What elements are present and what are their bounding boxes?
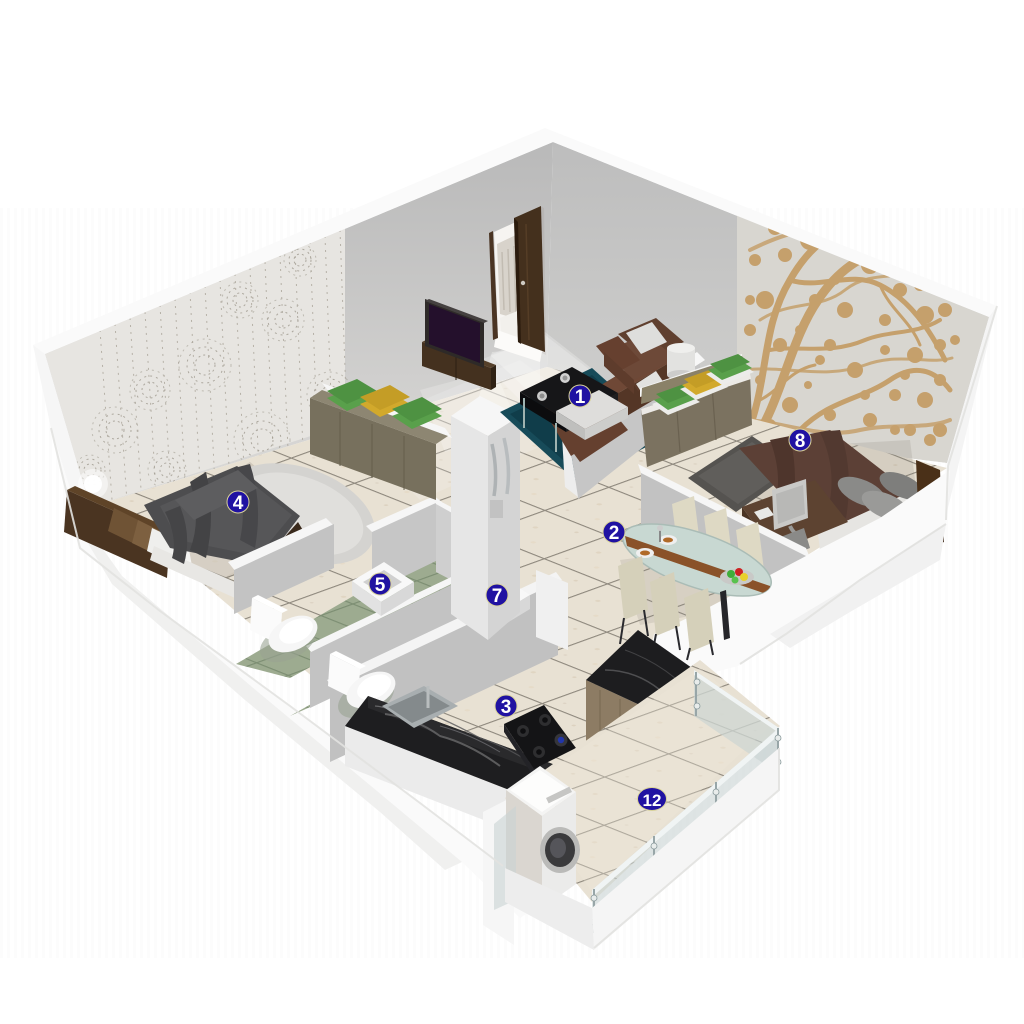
svg-text:8: 8 xyxy=(795,431,806,452)
svg-text:1: 1 xyxy=(575,387,586,408)
svg-text:12: 12 xyxy=(643,791,662,810)
svg-text:2: 2 xyxy=(609,523,620,544)
svg-text:3: 3 xyxy=(501,697,512,718)
svg-text:5: 5 xyxy=(375,575,386,596)
svg-text:7: 7 xyxy=(492,586,503,607)
svg-text:4: 4 xyxy=(233,493,244,514)
